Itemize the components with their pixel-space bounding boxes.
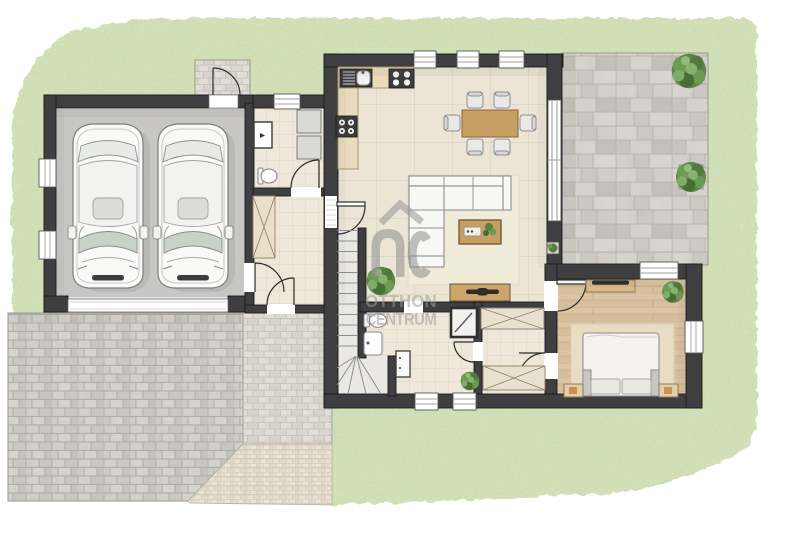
svg-text:CENTRUM: CENTRUM (366, 310, 437, 329)
svg-text:OTTHON: OTTHON (365, 292, 437, 311)
